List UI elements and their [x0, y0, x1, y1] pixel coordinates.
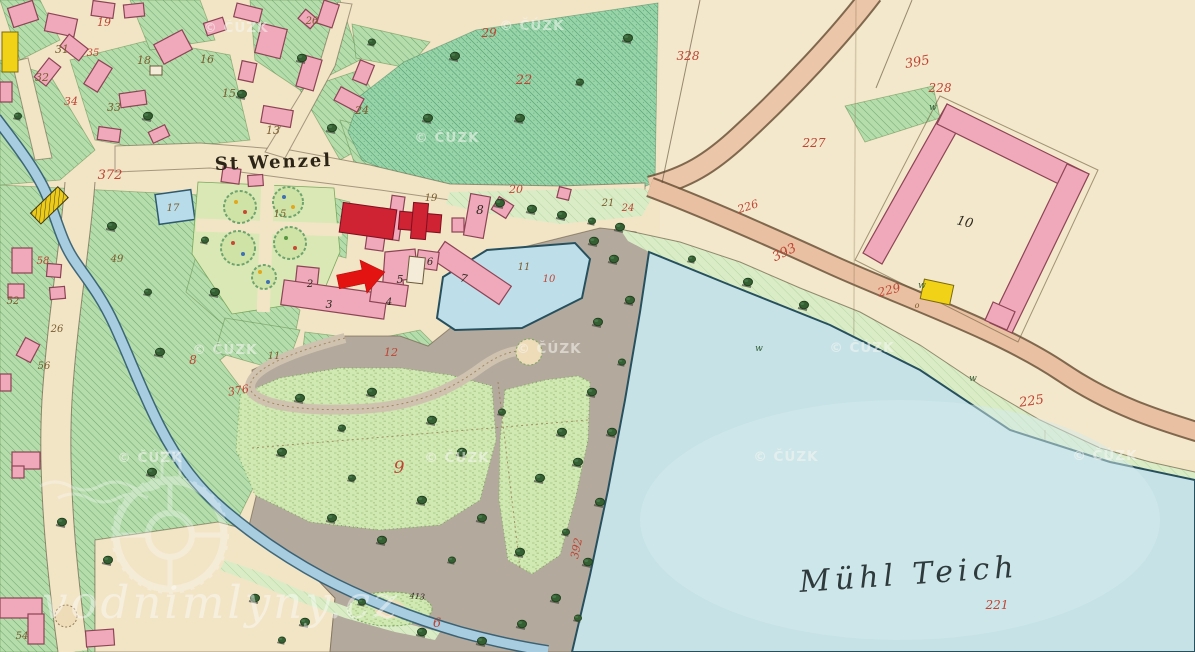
- parcel-label: 33: [107, 101, 121, 114]
- parcel-label: 24: [621, 203, 635, 214]
- parcel-label: 58: [37, 256, 50, 267]
- building-pink: [452, 218, 464, 232]
- yellow-building: [2, 32, 18, 72]
- building-pink: [50, 286, 66, 299]
- parcel-label: 8: [476, 203, 484, 217]
- settlement-label: St Wenzel: [214, 150, 332, 175]
- parcel-label: 328: [677, 49, 700, 63]
- cuzk-watermark: © ČÚZK: [516, 339, 581, 357]
- parcel-label: 11: [518, 262, 531, 273]
- building-pink: [12, 248, 32, 273]
- building-pink: [0, 374, 11, 391]
- parcel-label: 372: [98, 168, 123, 183]
- building-pink: [12, 466, 24, 478]
- building-pink: [123, 3, 144, 18]
- building-pink: [238, 61, 257, 83]
- cuzk-watermark: © ČÚZK: [829, 338, 894, 356]
- parcel-label: 31: [55, 43, 69, 56]
- site-watermark-text: vodnimlyny.cz: [42, 576, 400, 629]
- parcel-label: 2: [306, 279, 313, 290]
- parcel-label: 34: [64, 95, 78, 108]
- parcel-label: 29: [480, 26, 497, 40]
- parcel-label: 26: [305, 16, 319, 27]
- flower-bed: [221, 231, 255, 265]
- parcel-label: 6: [427, 257, 434, 268]
- parcel-label: 21: [601, 198, 615, 209]
- building-pink: [119, 90, 147, 107]
- building-pink: [97, 127, 121, 143]
- parcel-label: o: [915, 301, 920, 310]
- building-red-church: [410, 202, 428, 239]
- parcel-label: 35: [87, 48, 100, 59]
- parcel-label: 413: [408, 591, 425, 602]
- building-pink: [248, 174, 264, 186]
- parcel-label: 6: [433, 616, 441, 631]
- building-pink: [0, 82, 12, 102]
- map-viewport[interactable]: 1931353234331816151337217152624292232839…: [0, 0, 1195, 652]
- parcel-label: 49: [110, 254, 124, 265]
- parcel-label: 22: [515, 73, 533, 88]
- parcel-label: 20: [508, 183, 523, 196]
- building-outline: [407, 256, 426, 284]
- parcel-label: 16: [200, 53, 214, 66]
- parcel-label: 12: [384, 346, 398, 359]
- parcel-label: 52: [7, 296, 20, 307]
- cuzk-watermark: © ČÚZK: [424, 448, 489, 466]
- parcel-label: 4: [385, 297, 392, 308]
- parcel-label: 221: [985, 598, 1009, 612]
- parcel-label: 26: [50, 324, 64, 335]
- parcel-label: 227: [802, 136, 826, 150]
- parcel-label: 15: [222, 87, 236, 100]
- cuzk-watermark: © ČÚZK: [203, 18, 268, 36]
- cuzk-watermark: © ČÚZK: [414, 128, 479, 146]
- parcel-label: 10: [543, 274, 556, 285]
- cuzk-watermark: © ČÚZK: [753, 447, 818, 465]
- parcel-label: 19: [97, 16, 111, 29]
- parcel-label: 18: [137, 54, 151, 67]
- parcel-label: 19: [425, 193, 438, 204]
- parcel-label: w: [918, 281, 926, 291]
- parcel-label: 9: [394, 458, 405, 478]
- cuzk-watermark: © ČÚZK: [192, 340, 257, 358]
- parcel-label: w: [969, 374, 977, 384]
- parcel-label: w: [755, 344, 763, 354]
- flower-bed: [274, 227, 306, 259]
- parcel-label: 54: [16, 631, 29, 642]
- parcel-label: 17: [167, 203, 180, 214]
- parcel-label: w: [929, 103, 937, 113]
- parcel-label: 15: [274, 209, 287, 220]
- building-pink: [557, 187, 571, 201]
- parcel-label: 24: [354, 104, 369, 117]
- map-canvas: 1931353234331816151337217152624292232839…: [0, 0, 1195, 652]
- building-pink: [85, 629, 114, 647]
- parcel-label: 5: [397, 273, 404, 286]
- parcel-label: 11: [268, 351, 281, 362]
- flower-bed: [252, 265, 276, 289]
- parcel-label: 56: [38, 361, 51, 372]
- parcel-label: 228: [928, 81, 952, 95]
- building-outline: [150, 66, 162, 75]
- flower-bed: [224, 191, 256, 223]
- parcel-label: 13: [266, 124, 280, 137]
- cuzk-watermark: © ČÚZK: [499, 16, 564, 34]
- parcel-label: 32: [35, 71, 49, 84]
- parcel-label: 3: [326, 298, 333, 311]
- cuzk-watermark: © ČÚZK: [1072, 446, 1137, 464]
- pond-highlight: [640, 400, 1160, 640]
